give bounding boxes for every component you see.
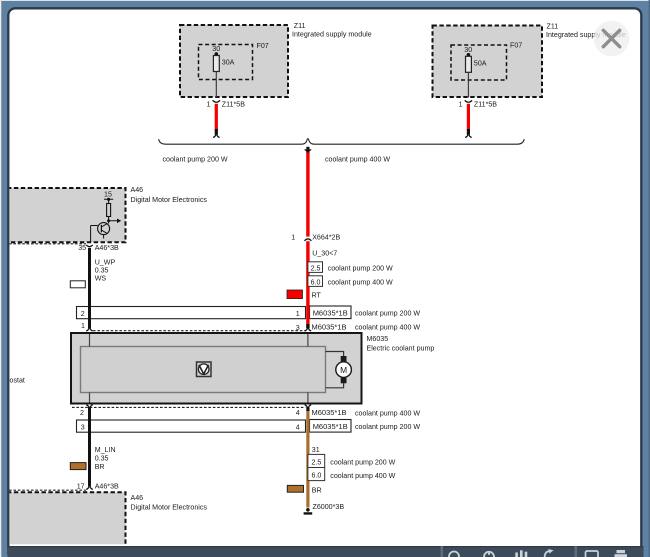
svg-text:2.5: 2.5 xyxy=(311,264,321,272)
svg-text:30A: 30A xyxy=(222,59,235,67)
svg-text:BR: BR xyxy=(95,463,105,471)
svg-text:6.0: 6.0 xyxy=(312,472,322,480)
svg-text:0.35: 0.35 xyxy=(95,266,109,274)
svg-text:2: 2 xyxy=(81,310,85,318)
svg-text:M6035*1B: M6035*1B xyxy=(312,408,347,417)
svg-text:coolant pump 400 W: coolant pump 400 W xyxy=(330,472,395,480)
svg-text:Z11*5B: Z11*5B xyxy=(222,101,245,109)
svg-text:BR: BR xyxy=(312,486,322,494)
svg-text:M: M xyxy=(340,365,347,375)
svg-text:17: 17 xyxy=(77,483,85,491)
svg-text:Z11: Z11 xyxy=(547,22,559,30)
svg-text:A46: A46 xyxy=(131,186,144,194)
svg-text:50A: 50A xyxy=(474,59,487,67)
svg-text:1: 1 xyxy=(207,101,211,109)
svg-text:coolant pump 400 W: coolant pump 400 W xyxy=(325,156,390,164)
svg-text:coolant pump 200 W: coolant pump 200 W xyxy=(163,156,228,164)
svg-text:30: 30 xyxy=(212,45,220,53)
svg-text:Digital Motor Electronics: Digital Motor Electronics xyxy=(131,504,208,512)
svg-text:0.35: 0.35 xyxy=(95,455,109,463)
svg-text:A46: A46 xyxy=(131,494,144,502)
svg-text:A46*3B: A46*3B xyxy=(95,244,119,252)
svg-text:coolant pump 400 W: coolant pump 400 W xyxy=(328,278,393,286)
svg-text:Z6000*3B: Z6000*3B xyxy=(313,503,345,511)
svg-text:2: 2 xyxy=(80,409,84,417)
svg-text:coolant pump 200 W: coolant pump 200 W xyxy=(330,458,395,466)
svg-text:M6035*1B: M6035*1B xyxy=(313,422,348,431)
svg-text:3: 3 xyxy=(81,423,85,431)
svg-text:15: 15 xyxy=(104,191,112,199)
svg-text:Z11: Z11 xyxy=(294,22,306,30)
svg-text:Integrated supply module: Integrated supply module xyxy=(292,31,372,39)
svg-text:M6035*1B: M6035*1B xyxy=(312,322,347,331)
svg-text:31: 31 xyxy=(312,446,320,454)
svg-text:ostat: ostat xyxy=(10,377,25,385)
svg-text:F07: F07 xyxy=(510,42,522,50)
svg-text:U_30<7: U_30<7 xyxy=(312,249,337,257)
svg-text:coolant pump 400 W: coolant pump 400 W xyxy=(355,409,420,417)
svg-text:F07: F07 xyxy=(257,42,269,50)
svg-text:RT: RT xyxy=(312,292,322,300)
svg-text:4: 4 xyxy=(296,423,300,431)
svg-text:coolant pump 200 W: coolant pump 200 W xyxy=(328,264,393,272)
svg-text:Z11*5B: Z11*5B xyxy=(474,101,497,109)
svg-text:coolant pump 400 W: coolant pump 400 W xyxy=(355,324,420,332)
svg-text:35: 35 xyxy=(78,244,86,252)
svg-text:A46*3B: A46*3B xyxy=(95,483,119,491)
svg-text:X664*2B: X664*2B xyxy=(312,233,340,241)
svg-text:M6035*1B: M6035*1B xyxy=(313,309,348,318)
svg-text:Digital Motor Electronics: Digital Motor Electronics xyxy=(131,196,208,204)
svg-text:U_WP: U_WP xyxy=(95,258,116,266)
svg-text:coolant pump 200 W: coolant pump 200 W xyxy=(355,310,420,318)
svg-text:M_LIN: M_LIN xyxy=(95,446,116,454)
svg-text:M6035: M6035 xyxy=(367,335,389,343)
svg-text:2.5: 2.5 xyxy=(312,458,322,466)
svg-text:Electric coolant pump: Electric coolant pump xyxy=(367,345,435,353)
svg-text:coolant pump 200 W: coolant pump 200 W xyxy=(355,423,420,431)
svg-text:1: 1 xyxy=(296,310,300,318)
svg-text:30: 30 xyxy=(464,46,472,54)
svg-text:WS: WS xyxy=(95,274,107,282)
svg-text:1: 1 xyxy=(81,322,85,330)
svg-text:1: 1 xyxy=(291,233,295,241)
svg-text:1: 1 xyxy=(459,101,463,109)
svg-text:4: 4 xyxy=(296,409,300,417)
svg-text:6.0: 6.0 xyxy=(311,278,321,286)
